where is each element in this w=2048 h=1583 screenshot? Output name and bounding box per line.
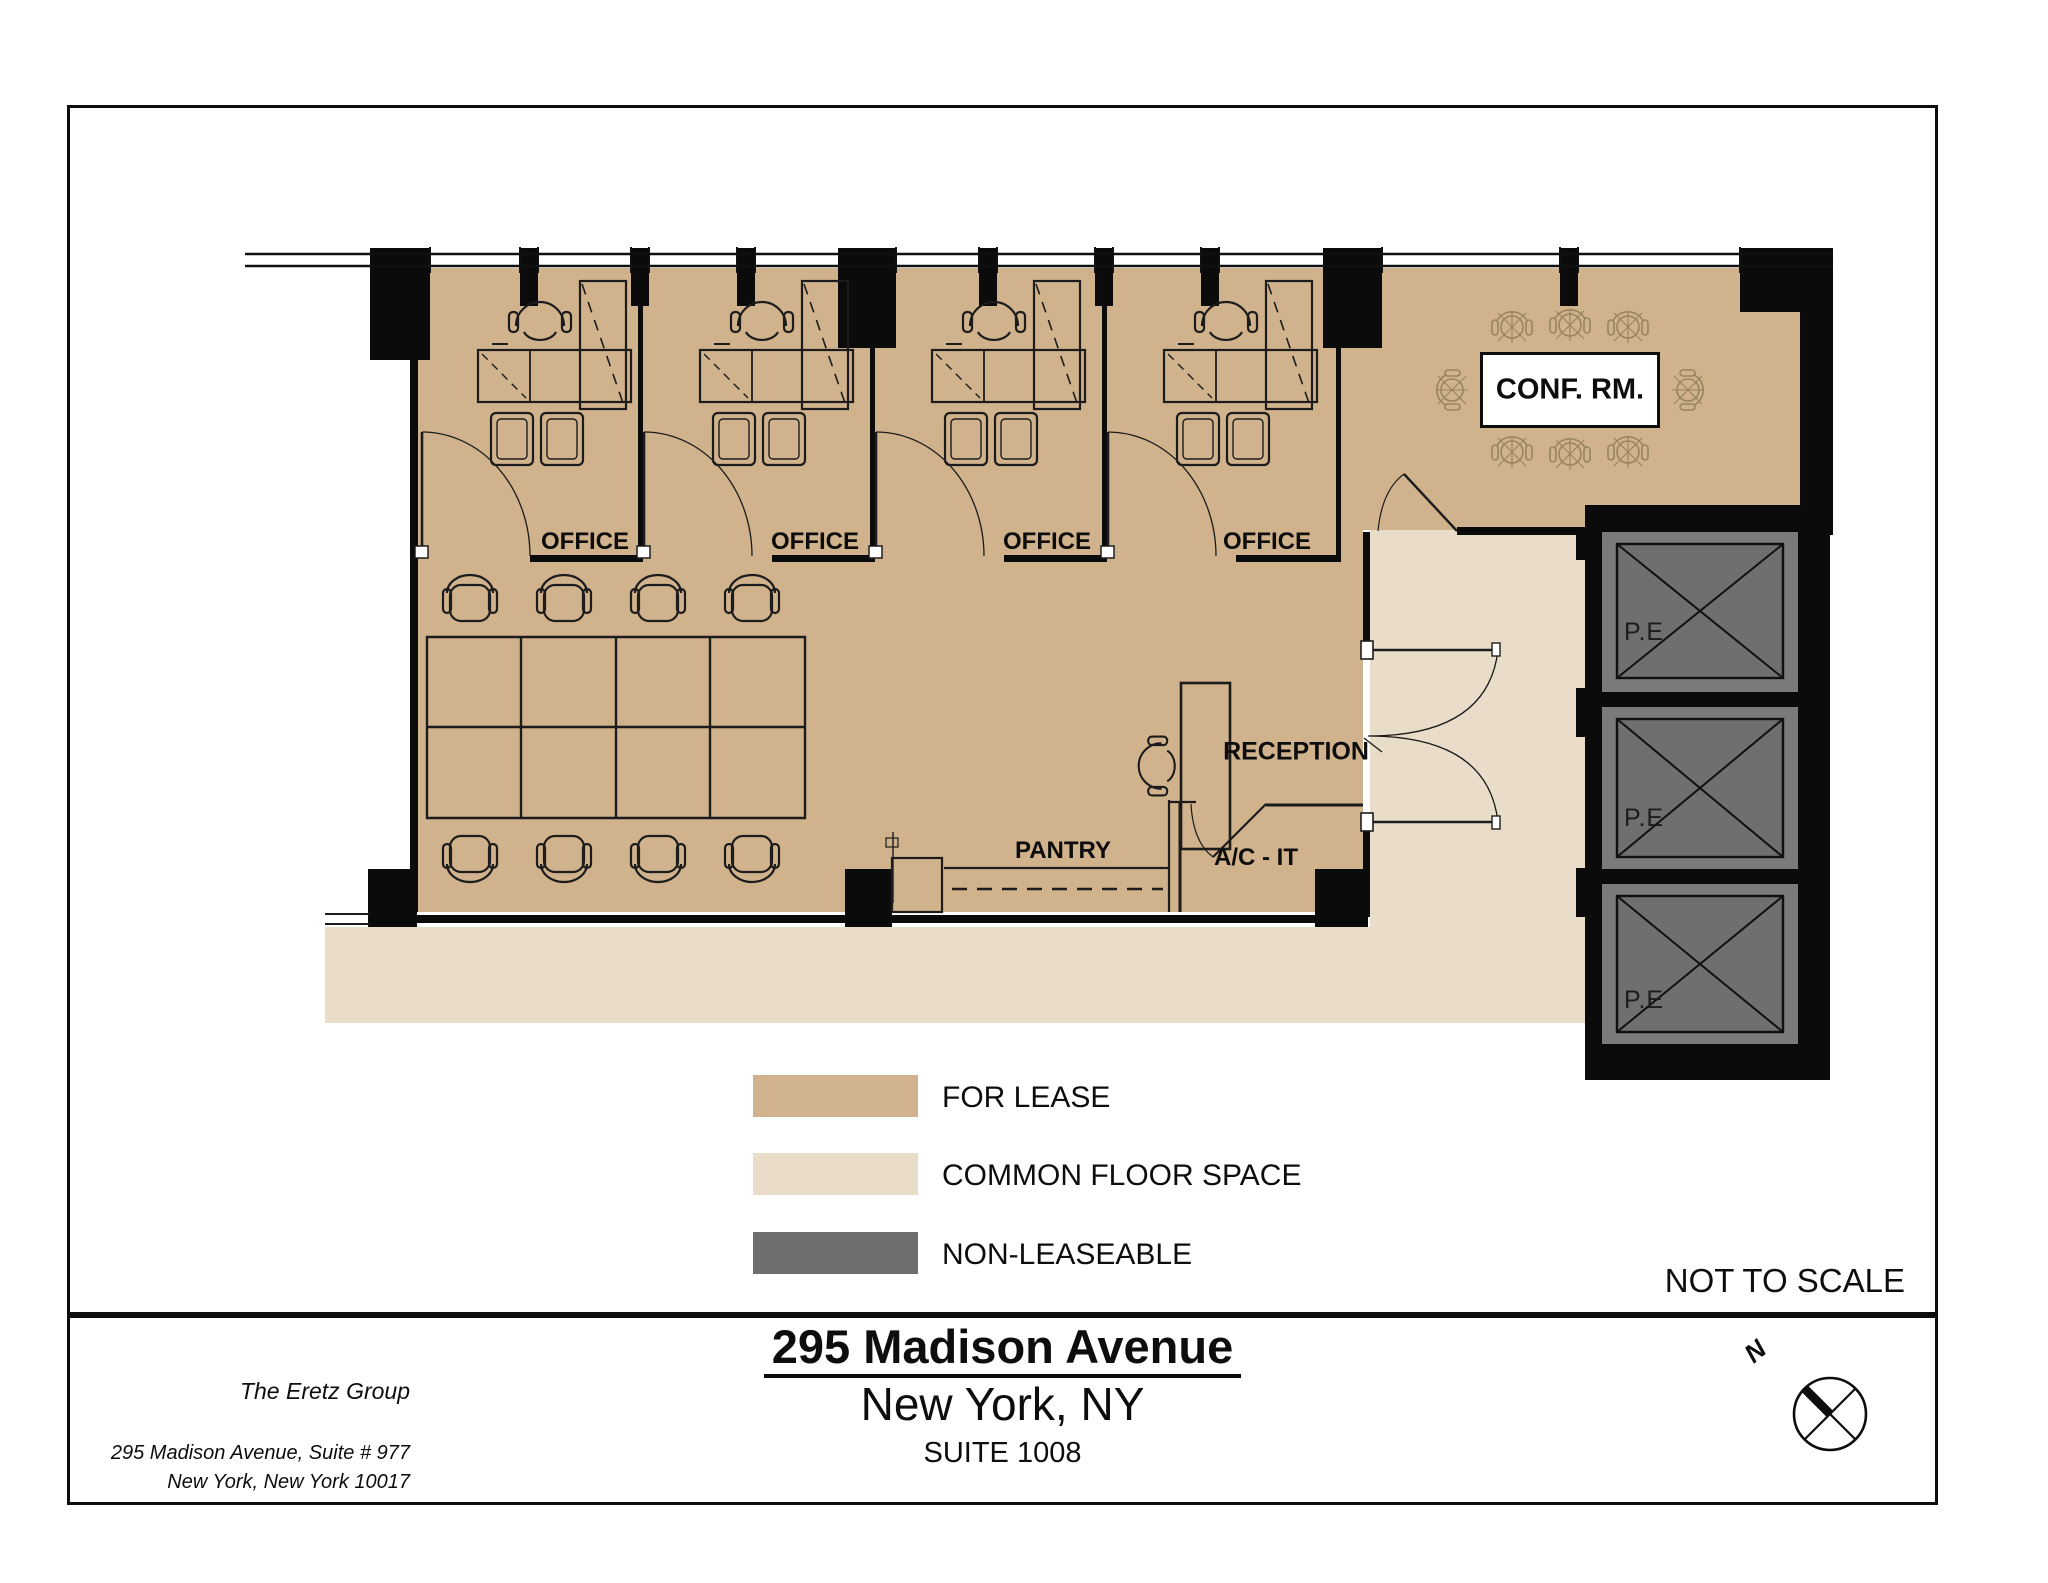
conference-chair-icon xyxy=(1492,436,1532,468)
conference-chair-icon xyxy=(1550,309,1590,341)
legend-swatch-common xyxy=(753,1153,918,1195)
building-address: 295 Madison Avenue xyxy=(764,1322,1241,1378)
conference-chair-icon xyxy=(1672,370,1704,410)
legend-swatch-non-leaseable xyxy=(753,1232,918,1274)
bullpen-chair-icon xyxy=(537,575,591,621)
bullpen-chair-icon xyxy=(443,575,497,621)
broker-address-line2: New York, New York 10017 xyxy=(110,1468,410,1497)
office-furniture xyxy=(637,281,853,558)
bullpen-chair-icon xyxy=(537,836,591,882)
broker-name: The Eretz Group xyxy=(110,1378,410,1405)
room-label-office-1: OFFICE xyxy=(541,528,629,556)
bullpen-chair-icon xyxy=(443,836,497,882)
conference-chair-icon xyxy=(1436,370,1468,410)
conference-chair-icon xyxy=(1608,436,1648,468)
conference-entry-door xyxy=(1378,474,1457,531)
legend-label-common: COMMON FLOOR SPACE xyxy=(942,1159,1301,1193)
legend-label-for-lease: FOR LEASE xyxy=(942,1081,1110,1115)
room-label-pantry: PANTRY xyxy=(1015,837,1111,865)
office-furniture xyxy=(415,281,631,558)
room-label-conference: CONF. RM. xyxy=(1496,374,1644,407)
not-to-scale-note: NOT TO SCALE xyxy=(1575,1262,1905,1300)
entry-double-doors xyxy=(1361,641,1500,831)
elevator-label-3: P.E xyxy=(1624,986,1664,1015)
room-label-ac-it: A/C - IT xyxy=(1214,844,1298,872)
bullpen-chair-icon xyxy=(725,836,779,882)
broker-block: The Eretz Group 295 Madison Avenue, Suit… xyxy=(110,1378,410,1497)
conference-chair-icon xyxy=(1550,438,1590,470)
room-label-office-4: OFFICE xyxy=(1223,528,1311,556)
elevator-label-2: P.E xyxy=(1624,804,1664,833)
window-band xyxy=(245,247,1833,273)
reception-chair-icon xyxy=(1139,737,1175,796)
room-label-office-3: OFFICE xyxy=(1003,528,1091,556)
room-label-reception: RECEPTION xyxy=(1223,738,1369,767)
office-furniture xyxy=(869,281,1085,558)
elevator-label-1: P.E xyxy=(1624,618,1664,647)
conference-chair-icon xyxy=(1492,311,1532,343)
bullpen-chair-icon xyxy=(631,575,685,621)
legend-label-non-leaseable: NON-LEASEABLE xyxy=(942,1238,1192,1272)
floor-plan-page: OFFICE OFFICE OFFICE OFFICE CONF. RM. RE… xyxy=(0,0,2048,1583)
broker-address-line1: 295 Madison Avenue, Suite # 977 xyxy=(110,1439,410,1468)
bullpen-chair-icon xyxy=(631,836,685,882)
room-label-office-2: OFFICE xyxy=(771,528,859,556)
office-furniture xyxy=(1101,281,1317,558)
legend-swatch-for-lease xyxy=(753,1075,918,1117)
conference-chair-icon xyxy=(1608,311,1648,343)
bullpen-table-icon xyxy=(427,637,805,818)
bullpen-chair-icon xyxy=(725,575,779,621)
